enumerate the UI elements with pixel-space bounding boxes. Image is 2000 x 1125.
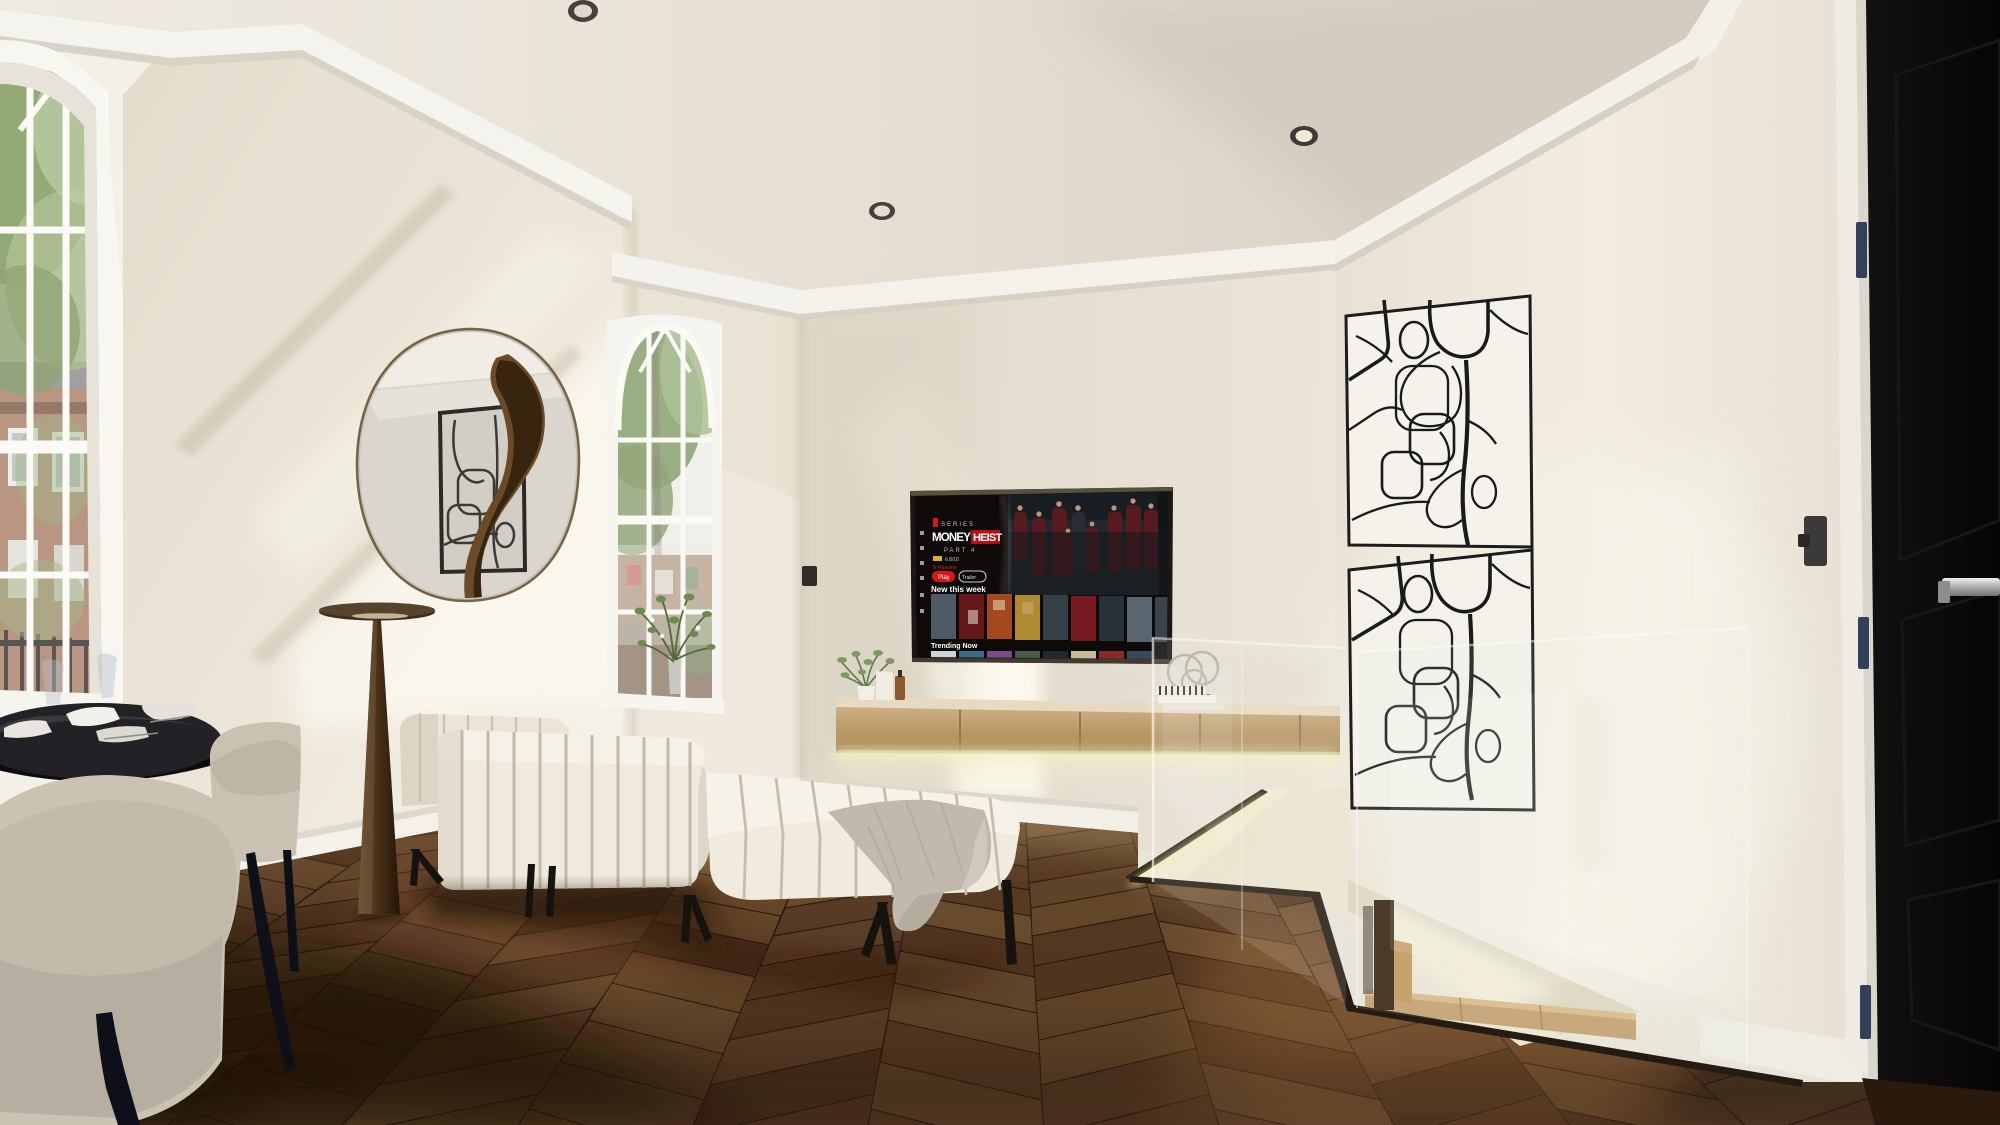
svg-text:New this week: New this week [931, 585, 986, 594]
svg-text:N Resume: N Resume [933, 565, 957, 571]
svg-text:SERIES: SERIES [941, 522, 975, 528]
svg-text:PART 4: PART 4 [944, 548, 976, 554]
svg-text:HEIST: HEIST [973, 532, 1002, 544]
svg-text:Trending Now: Trending Now [931, 643, 978, 650]
svg-text:Trailer: Trailer [962, 575, 976, 581]
svg-text:Play: Play [938, 575, 950, 581]
svg-text:MONEY: MONEY [932, 532, 971, 544]
svg-text:6.8/10: 6.8/10 [945, 557, 959, 563]
